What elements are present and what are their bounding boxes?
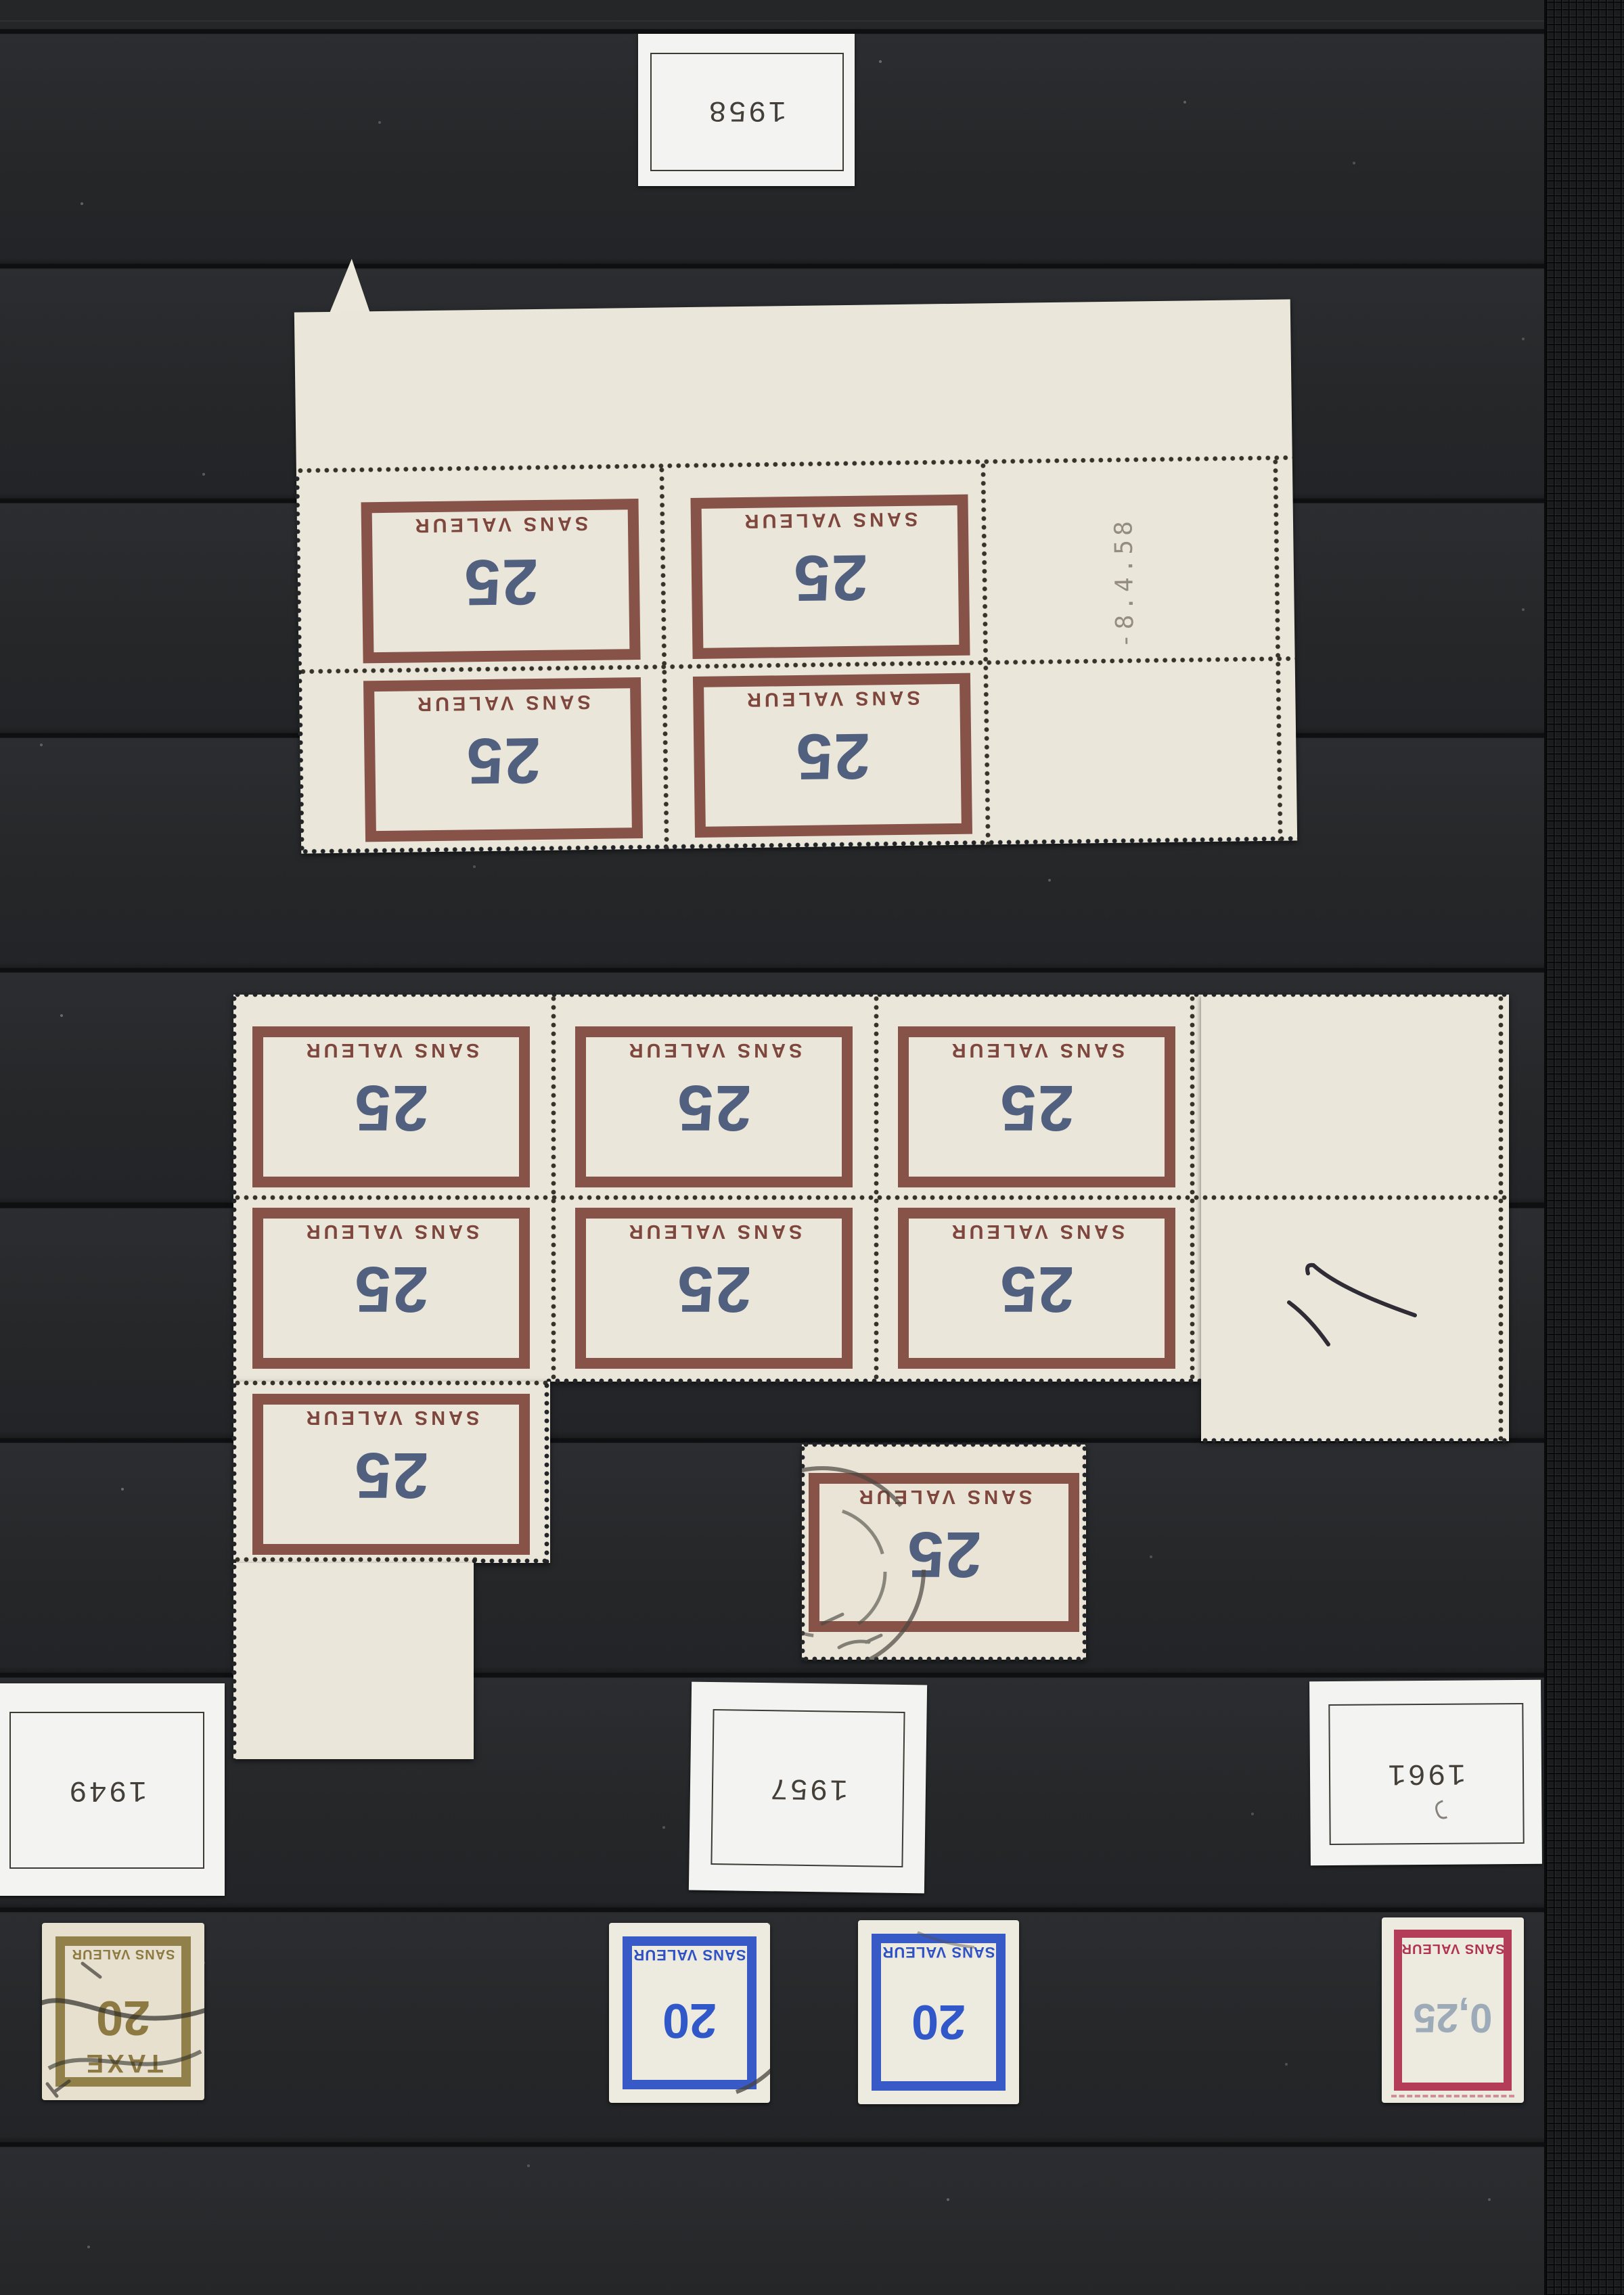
year-text: 1958 bbox=[638, 34, 855, 186]
year-label-1949: 1949 bbox=[0, 1683, 225, 1896]
stamp-inscription: SANS VALEUR bbox=[575, 1221, 853, 1241]
offset-print-marks bbox=[1391, 2095, 1514, 2097]
perforation-edge bbox=[231, 1563, 238, 1759]
perforation-column bbox=[873, 995, 880, 1382]
stamp-taxe-label: TAXE bbox=[42, 2050, 204, 2076]
middle-block-selvage-bottom bbox=[233, 1563, 474, 1759]
stamp-25-sans-valeur: 25 SANS VALEUR bbox=[575, 1208, 853, 1369]
stamp-25-sans-valeur: 25 SANS VALEUR bbox=[252, 1208, 530, 1369]
perforation-edge bbox=[470, 1558, 550, 1565]
stamp-inscription: SANS VALEUR bbox=[575, 1040, 853, 1060]
stamp-value: 20 bbox=[858, 1997, 1019, 2046]
stamp-25-sans-valeur: 25 SANS VALEUR bbox=[361, 499, 641, 663]
strip-edge-line bbox=[0, 20, 1624, 22]
stamp-blue-20-mint: 20 SANS VALEUR bbox=[858, 1920, 1019, 2104]
stamp-value: 25 bbox=[252, 1442, 530, 1507]
perforation-edge bbox=[231, 1382, 238, 1563]
perforation-edge bbox=[233, 991, 1201, 999]
stamp-inscription: SANS VALEUR bbox=[361, 512, 639, 535]
perforation-column bbox=[1272, 458, 1284, 841]
stamp-25-sans-valeur: 25 SANS VALEUR bbox=[252, 1026, 530, 1187]
perforation-edge bbox=[1201, 991, 1509, 999]
printing-date: -8.4.58 bbox=[1096, 501, 1154, 664]
middle-block-selvage-right bbox=[1201, 995, 1509, 1441]
stamp-25-sans-valeur: 25 SANS VALEUR bbox=[252, 1394, 530, 1555]
perforation-edge bbox=[1201, 1437, 1509, 1445]
stamp-taxe-20: TAXE 20 SANS VALEUR bbox=[42, 1923, 204, 2100]
corner-block-of-four: 25 SANS VALEUR 25 SANS VALEUR 25 SANS VA… bbox=[294, 299, 1297, 853]
perforation-row bbox=[233, 1194, 1201, 1202]
perforation-column bbox=[658, 466, 671, 849]
perforation-column bbox=[1189, 995, 1196, 1382]
stamp-value: 25 bbox=[691, 543, 969, 612]
perforation-row bbox=[1201, 1194, 1509, 1202]
perforation-column bbox=[1497, 995, 1505, 1441]
stamp-inscription: SANS VALEUR bbox=[898, 1221, 1175, 1241]
year-text: 1957 bbox=[689, 1682, 927, 1894]
stamp-value: 25 bbox=[575, 1256, 853, 1321]
stamp-inscription: SANS VALEUR bbox=[252, 1407, 530, 1427]
stamp-inscription: SANS VALEUR bbox=[693, 687, 970, 710]
stamp-value: 25 bbox=[364, 726, 642, 794]
stamp-25-sans-valeur: 25 SANS VALEUR bbox=[809, 1473, 1079, 1632]
stamp-25-sans-valeur: 25 SANS VALEUR bbox=[898, 1026, 1175, 1187]
stockbook-page: 1958 25 SANS VALEUR 25 SANS VALEUR 25 SA… bbox=[0, 0, 1624, 2295]
stamp-25-sans-valeur: 25 SANS VALEUR bbox=[693, 673, 972, 838]
stamp-value: 25 bbox=[694, 722, 972, 790]
stamp-inscription: SANS VALEUR bbox=[1382, 1942, 1524, 1955]
perforation-column bbox=[980, 461, 992, 844]
pencil-check-mark bbox=[1201, 995, 1509, 1441]
year-label-1957: 1957 bbox=[689, 1682, 927, 1894]
stamp-25-sans-valeur: 25 SANS VALEUR bbox=[363, 677, 643, 842]
stamp-value: 20 bbox=[42, 1993, 204, 2042]
perforation-edge bbox=[802, 1656, 1086, 1663]
stamp-value: 20 bbox=[609, 1996, 770, 2045]
stamp-inscription: SANS VALEUR bbox=[691, 508, 968, 531]
dust-speckles bbox=[0, 0, 1, 1]
stamp-inscription: SANS VALEUR bbox=[252, 1221, 530, 1241]
middle-block-row3: 25 SANS VALEUR bbox=[233, 1382, 550, 1563]
used-stamp-25: 25 SANS VALEUR bbox=[802, 1445, 1086, 1660]
perforation-row bbox=[233, 1380, 550, 1387]
stamp-carmine-025: 0,25 SANS VALEUR bbox=[1382, 1917, 1524, 2103]
stamp-inscription: SANS VALEUR bbox=[609, 1947, 770, 1962]
middle-block-rows: 25 SANS VALEUR 25 SANS VALEUR 25 SANS VA… bbox=[233, 995, 1201, 1382]
perforation-edge bbox=[802, 1441, 1086, 1449]
binding-cloth-strip bbox=[1544, 0, 1624, 2295]
stamp-inscription: SANS VALEUR bbox=[858, 1945, 1019, 1959]
stamp-inscription: SANS VALEUR bbox=[809, 1486, 1079, 1506]
stamp-value: 0,25 bbox=[1382, 1997, 1524, 2038]
perforation-edge bbox=[231, 995, 238, 1382]
stamp-value: 25 bbox=[898, 1256, 1175, 1321]
stamp-value: 25 bbox=[252, 1256, 530, 1321]
stamp-value: 25 bbox=[252, 1075, 530, 1140]
stamp-25-sans-valeur: 25 SANS VALEUR bbox=[575, 1026, 853, 1187]
year-label-1961: 1961 bbox=[1309, 1680, 1542, 1865]
stamp-inscription: SANS VALEUR bbox=[252, 1040, 530, 1060]
stamp-25-sans-valeur: 25 SANS VALEUR bbox=[690, 495, 970, 659]
year-text: 1961 bbox=[1309, 1680, 1542, 1865]
stamp-value: 25 bbox=[575, 1075, 853, 1140]
perforation-row bbox=[296, 454, 1292, 474]
stamp-inscription: SANS VALEUR bbox=[363, 691, 641, 714]
stamp-inscription: SANS VALEUR bbox=[898, 1040, 1175, 1060]
year-label-1958: 1958 bbox=[638, 34, 855, 186]
perforation-edge bbox=[799, 1445, 807, 1660]
perforation-edge bbox=[1081, 1445, 1089, 1660]
stamp-blue-20-used: 20 SANS VALEUR CTION bbox=[609, 1923, 770, 2103]
stamp-inscription: SANS VALEUR bbox=[42, 1947, 204, 1961]
stamp-value: 25 bbox=[898, 1075, 1175, 1140]
torn-corner-notch bbox=[329, 258, 370, 313]
year-text: 1949 bbox=[0, 1683, 225, 1896]
perforation-edge bbox=[543, 1382, 551, 1563]
stamp-value: 25 bbox=[361, 547, 639, 616]
stamp-value: 25 bbox=[809, 1522, 1079, 1587]
perforation-column bbox=[550, 995, 558, 1382]
stamp-25-sans-valeur: 25 SANS VALEUR bbox=[898, 1208, 1175, 1369]
